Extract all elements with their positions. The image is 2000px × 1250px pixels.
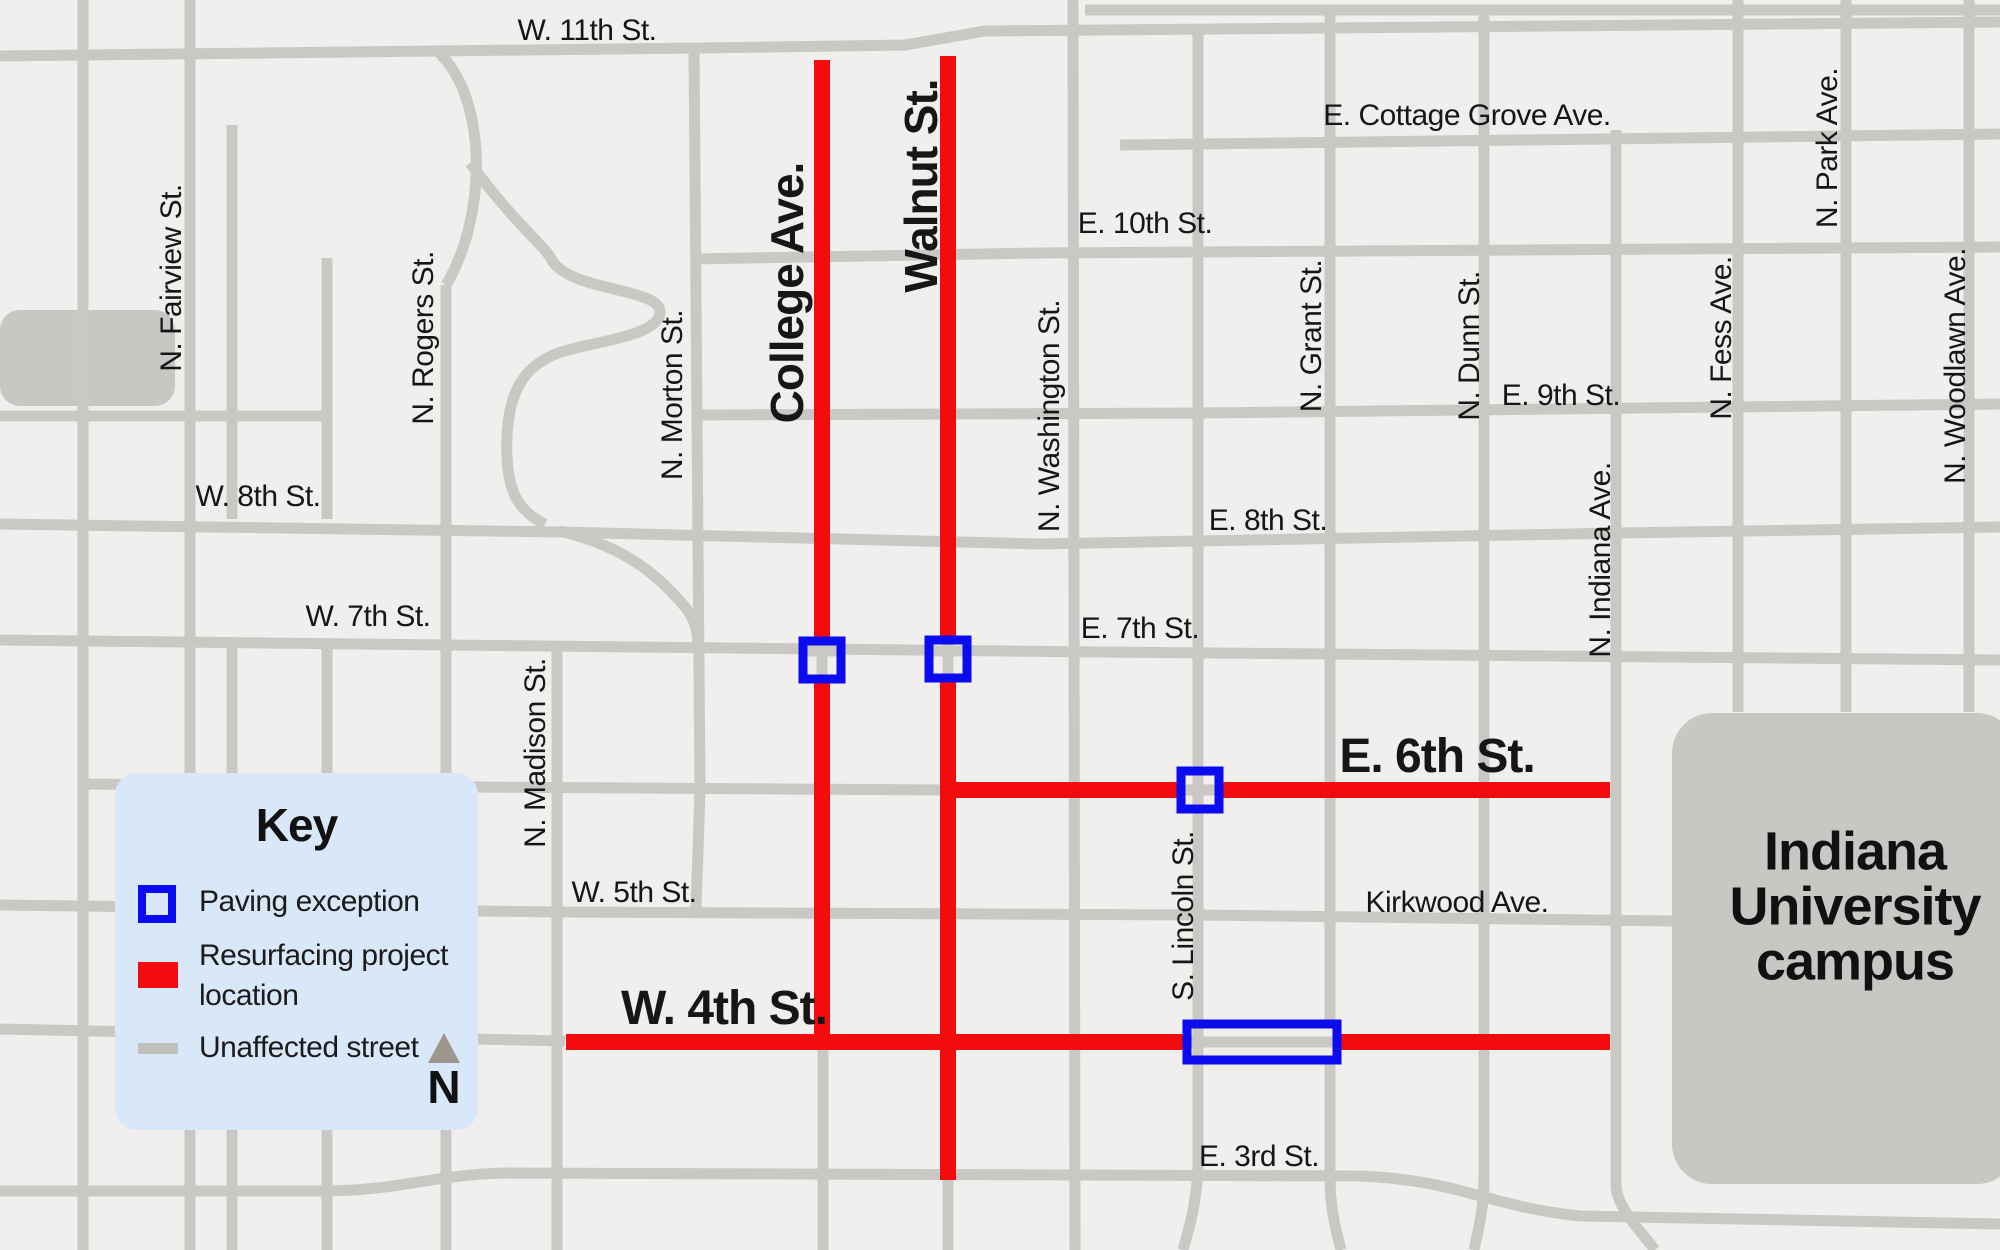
- key-item-resurfacing: Resurfacing project location: [199, 936, 479, 1016]
- street-label-college-ave: College Ave.: [764, 163, 810, 424]
- street-label-e-cottage: E. Cottage Grove Ave.: [1323, 101, 1610, 131]
- street-label-n-madison: N. Madison St.: [521, 658, 551, 848]
- key-title: Key: [115, 798, 478, 852]
- street-label-e-9th: E. 9th St.: [1502, 381, 1620, 411]
- campus-line-3: campus: [1729, 935, 1980, 990]
- unaffected-street: [1474, 10, 1484, 1250]
- street-label-w-11th: W. 11th St.: [517, 16, 656, 46]
- street-label-n-fess: N. Fess Ave.: [1707, 256, 1737, 420]
- unaffected-street: [0, 524, 2000, 544]
- unaffected-street: [560, 531, 698, 648]
- key-item-paving-exception: Paving exception: [199, 882, 479, 922]
- street-label-n-rogers: N. Rogers St.: [409, 251, 439, 425]
- unaffected-street: [1616, 130, 1655, 1250]
- compass-north-label: N: [426, 1063, 462, 1111]
- street-label-n-morton: N. Morton St.: [658, 310, 688, 480]
- street-label-n-indiana: N. Indiana Ave.: [1586, 462, 1616, 657]
- street-label-n-washington: N. Washington St.: [1035, 300, 1065, 532]
- street-label-s-lincoln: S. Lincoln St.: [1169, 831, 1199, 1001]
- street-label-w-4th: W. 4th St.: [621, 985, 827, 1033]
- street-label-w-8th: W. 8th St.: [195, 482, 320, 512]
- street-label-kirkwood: Kirkwood Ave.: [1365, 888, 1548, 918]
- unaffected-street: [0, 640, 2000, 660]
- key-panel: Key Paving exception Resurfacing project…: [115, 773, 478, 1130]
- street-label-n-park: N. Park Ave.: [1813, 68, 1843, 228]
- street-label-n-fairview: N. Fairview St.: [157, 184, 187, 372]
- unaffected-street: [1073, 0, 1075, 1250]
- campus-line-1: Indiana: [1729, 825, 1980, 880]
- street-label-w-7th: W. 7th St.: [305, 602, 430, 632]
- paving-exception-icon: [138, 885, 176, 923]
- street-label-n-dunn: N. Dunn St.: [1455, 271, 1485, 421]
- map-stage: W. 11th St.N. Fairview St.N. Rogers St.N…: [0, 0, 2000, 1250]
- campus-line-2: University: [1729, 880, 1980, 935]
- street-label-e-10th: E. 10th St.: [1078, 209, 1213, 239]
- unaffected-street: [694, 51, 700, 909]
- north-compass-icon: N: [426, 1033, 462, 1111]
- unaffected-street: [470, 163, 660, 524]
- unaffected-street: [0, 22, 2000, 56]
- street-label-walnut-st: Walnut St.: [898, 79, 944, 292]
- street-label-e-8th: E. 8th St.: [1209, 506, 1327, 536]
- unaffected-street: [694, 404, 2000, 415]
- street-label-e-6th: E. 6th St.: [1339, 733, 1534, 781]
- unaffected-street-icon: [138, 1043, 178, 1054]
- street-label-n-grant: N. Grant St.: [1297, 260, 1327, 412]
- unaffected-street: [693, 247, 2000, 259]
- street-label-w-5th: W. 5th St.: [571, 878, 696, 908]
- unaffected-street: [1120, 134, 2000, 145]
- street-label-e-7th: E. 7th St.: [1081, 614, 1199, 644]
- street-label-e-3rd: E. 3rd St.: [1199, 1142, 1319, 1172]
- campus-label: Indiana University campus: [1729, 825, 1980, 990]
- street-label-n-woodlawn: N. Woodlawn Ave.: [1941, 248, 1971, 484]
- compass-arrow-icon: [428, 1033, 460, 1063]
- resurfacing-swatch-icon: [138, 962, 178, 988]
